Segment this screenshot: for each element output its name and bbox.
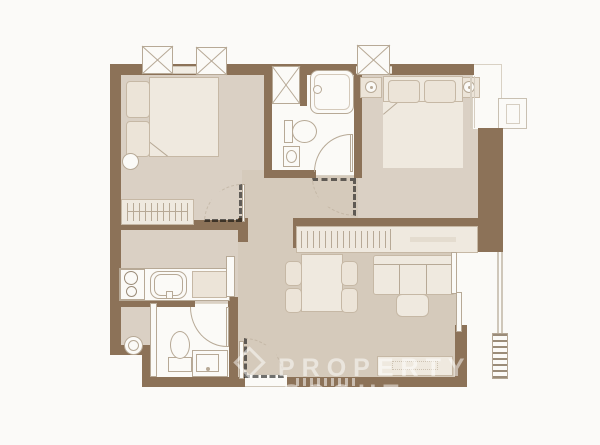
bedside-stool: [122, 153, 139, 170]
balcony-railing-inner: [501, 252, 503, 333]
kitchen-cabinet: [192, 271, 227, 298]
wall-bedroom2-right: [478, 128, 503, 252]
bed2-pillow-left: [388, 80, 420, 103]
wall-bottom-hatch: [296, 378, 356, 386]
ac-unit-3-cross: [357, 45, 390, 75]
bed2-pillow-right: [424, 80, 456, 103]
bedroom2-window-line-1: [470, 76, 472, 128]
bed1-mattress: [149, 77, 219, 157]
sofa: [373, 255, 455, 295]
bedroom1-door-leaf: [242, 184, 245, 222]
toilet1-bowl: [292, 120, 317, 143]
balcony-slider-panel-1: [451, 252, 457, 294]
stove-burner-2: [126, 286, 137, 297]
sofa-cushion-divider-1: [399, 265, 400, 294]
ac-unit-2-cross: [196, 47, 227, 75]
tv-console-detail: [392, 361, 438, 370]
sofa-cushion-divider-2: [426, 265, 427, 294]
bathroom1-sink-basin: [286, 150, 297, 163]
balcony-slider-panel-2: [456, 292, 462, 332]
side-window-pane: [506, 104, 520, 124]
utility-sliding-door: [150, 303, 157, 377]
dining-chair-3: [341, 261, 358, 286]
toilet2-tank: [168, 357, 192, 372]
wardrobe-living-hangers: [301, 231, 389, 248]
wardrobe-living-divider: [390, 229, 391, 250]
coffee-table: [396, 294, 429, 317]
wall-bathroom2-right: [229, 303, 238, 387]
ac-unit-1-cross: [142, 46, 173, 74]
wall-bathroom1-left: [264, 64, 272, 178]
dining-chair-1: [285, 261, 302, 286]
dining-chair-4: [341, 288, 358, 313]
kitchen-tall-cabinet: [226, 256, 235, 297]
wall-stub-bottom-right: [455, 325, 467, 387]
wall-left: [110, 64, 121, 355]
bed1-pillow-bottom: [126, 121, 150, 157]
wardrobe-bedroom1-hangers: [127, 203, 188, 221]
wall-bathroom1-bottom: [264, 170, 316, 178]
shower-glass-cross: [272, 66, 300, 104]
sofa-back-line: [374, 264, 454, 265]
stove-burner-1: [124, 271, 138, 285]
floor-plan: PROPERTY SCOUT: [0, 0, 600, 445]
bathroom1-door-leaf: [350, 134, 353, 172]
balcony-railing-outer: [497, 252, 499, 333]
wardrobe-bedroom1-rail: [127, 211, 188, 212]
bed2-duvet: [383, 101, 463, 168]
bathroom2-door-leaf: [226, 307, 229, 347]
washing-machine-drum: [128, 340, 139, 351]
dining-table: [301, 254, 343, 312]
lamp-left-dot: [370, 86, 373, 89]
wardrobe-living-shelf: [410, 237, 456, 242]
bathtub-faucet: [313, 85, 322, 94]
wall-shower-divider: [300, 66, 307, 106]
dining-chair-2: [285, 288, 302, 313]
balcony-ac-condenser: [492, 333, 508, 379]
bed1-pillow-top: [126, 81, 150, 118]
bedroom2-window-line-2: [474, 76, 475, 128]
vanity-faucet: [206, 367, 210, 371]
kitchen-faucet: [166, 291, 173, 299]
toilet2-bowl: [170, 331, 190, 359]
